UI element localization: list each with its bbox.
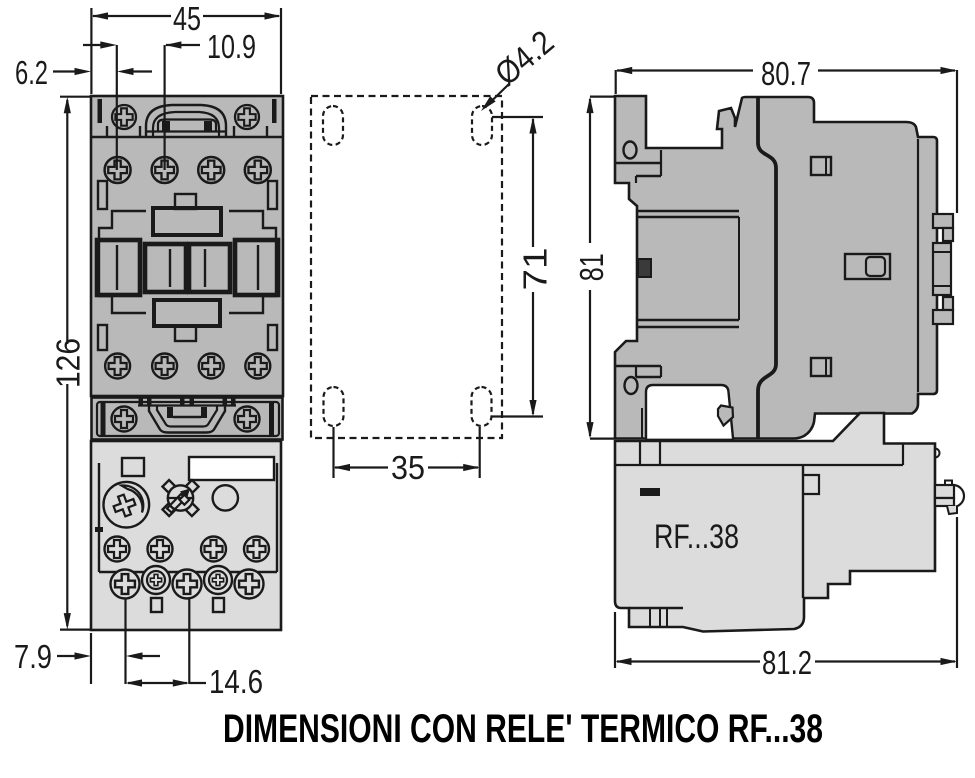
svg-text:14.6: 14.6 xyxy=(209,663,263,700)
svg-text:7.9: 7.9 xyxy=(14,638,52,675)
svg-text:35: 35 xyxy=(391,449,425,486)
svg-text:81.2: 81.2 xyxy=(762,644,812,681)
svg-text:45: 45 xyxy=(173,0,201,37)
svg-text:71: 71 xyxy=(517,248,554,291)
svg-text:6.2: 6.2 xyxy=(15,54,48,91)
svg-text:10.9: 10.9 xyxy=(207,28,256,65)
svg-text:RF...38: RF...38 xyxy=(654,518,739,556)
svg-text:80.7: 80.7 xyxy=(761,55,811,92)
svg-text:81: 81 xyxy=(573,253,610,281)
svg-text:Ø4.2: Ø4.2 xyxy=(488,23,561,92)
svg-text:126: 126 xyxy=(50,338,87,388)
svg-text:DIMENSIONI CON RELE' TERMICO R: DIMENSIONI CON RELE' TERMICO RF...38 xyxy=(223,707,823,751)
